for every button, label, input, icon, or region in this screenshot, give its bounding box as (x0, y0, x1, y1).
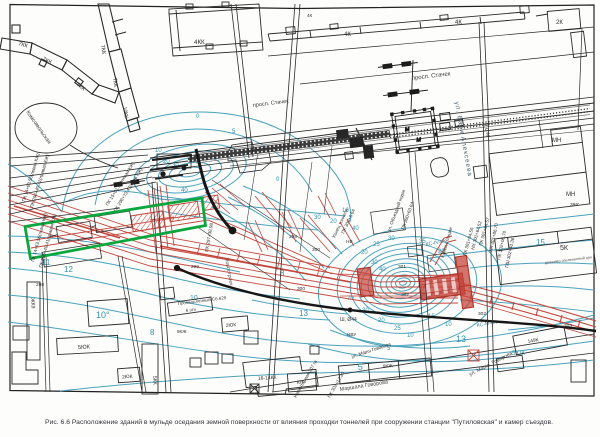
svg-text:20: 20 (378, 318, 385, 324)
svg-text:МН: МН (566, 192, 575, 198)
svg-text:1: 1 (233, 148, 236, 154)
svg-text:4К: 4К (344, 32, 351, 38)
svg-text:0: 0 (196, 114, 200, 120)
svg-text:30: 30 (371, 260, 378, 266)
svg-text:просп. Стачек: просп. Стачек (412, 71, 452, 82)
svg-text:10КК: 10КК (121, 106, 129, 119)
svg-text:4КК: 4КК (194, 39, 205, 46)
svg-text:5КК: 5КК (151, 376, 158, 385)
svg-text:399': 399' (570, 202, 579, 208)
svg-text:25: 25 (394, 326, 401, 332)
svg-text:НВ: НВ (346, 239, 353, 245)
svg-text:13: 13 (299, 309, 308, 318)
svg-text:25: 25 (373, 242, 380, 248)
svg-text:Комсомольская: Комсомольская (24, 110, 51, 146)
svg-text:4К: 4К (455, 20, 462, 26)
svg-text:7КК: 7КК (75, 82, 87, 93)
svg-text:ПК 300+60.64: ПК 300+60.64 (400, 201, 415, 230)
svg-text:10: 10 (155, 148, 162, 154)
svg-text:303: 303 (564, 323, 572, 329)
svg-text:М: М (405, 127, 411, 134)
svg-text:149К: 149К (527, 337, 539, 345)
svg-text:9КЖ: 9КЖ (383, 363, 394, 370)
svg-text:30: 30 (314, 215, 321, 221)
svg-text:ул. Марш. Говорова: ул. Марш. Говорова (468, 351, 513, 378)
svg-text:7КК: 7КК (99, 44, 106, 55)
svg-text:40: 40 (181, 188, 188, 194)
svg-text:298: 298 (36, 282, 44, 288)
svg-text:2ЮК: 2ЮК (226, 322, 237, 329)
svg-text:Рис. 6.6 Расположение зданий в: Рис. 6.6 Расположение зданий в мульде ос… (45, 418, 553, 426)
svg-text:2ЮК: 2ЮК (122, 374, 133, 381)
svg-text:МН: МН (552, 138, 561, 144)
svg-text:НВУ: НВУ (347, 332, 356, 337)
svg-text:300: 300 (297, 286, 305, 292)
svg-text:301: 301 (398, 264, 406, 270)
svg-text:299: 299 (191, 264, 199, 270)
svg-text:10: 10 (407, 333, 414, 339)
svg-text:302: 302 (478, 311, 486, 317)
svg-text:2К: 2К (556, 20, 563, 26)
svg-text:10: 10 (445, 322, 452, 328)
svg-text:5: 5 (357, 362, 363, 372)
svg-text:М: М (416, 137, 422, 144)
svg-text:4К: 4К (307, 13, 313, 18)
svg-text:5ЮК: 5ЮК (78, 344, 91, 351)
svg-text:0: 0 (276, 177, 280, 183)
svg-text:ПК 301+86.70: ПК 301+86.70 (488, 222, 499, 252)
svg-text:просп. Стачек: просп. Стачек (253, 99, 290, 109)
svg-text:302: 302 (401, 292, 409, 298)
svg-text:ЖК9: ЖК9 (29, 298, 36, 309)
svg-text:20: 20 (361, 250, 368, 256)
svg-text:Ш, Ø44: Ш, Ø44 (340, 317, 357, 323)
svg-text:8: 8 (150, 328, 155, 337)
svg-text:300: 300 (312, 247, 320, 253)
svg-text:9КЖ: 9КЖ (177, 329, 187, 334)
svg-text:40: 40 (379, 267, 386, 273)
svg-text:Промышленный Сб.62б: Промышленный Сб.62б (178, 295, 227, 306)
svg-text:30: 30 (388, 236, 395, 242)
svg-text:ПШ 302+40.36: ПШ 302+40.36 (504, 237, 515, 268)
svg-text:7КК: 7КК (111, 77, 118, 88)
svg-text:12: 12 (64, 265, 73, 274)
svg-text:299: 299 (289, 234, 297, 240)
svg-text:10°: 10° (96, 310, 110, 320)
svg-text:5К: 5К (560, 245, 569, 252)
svg-text:13: 13 (456, 334, 466, 344)
